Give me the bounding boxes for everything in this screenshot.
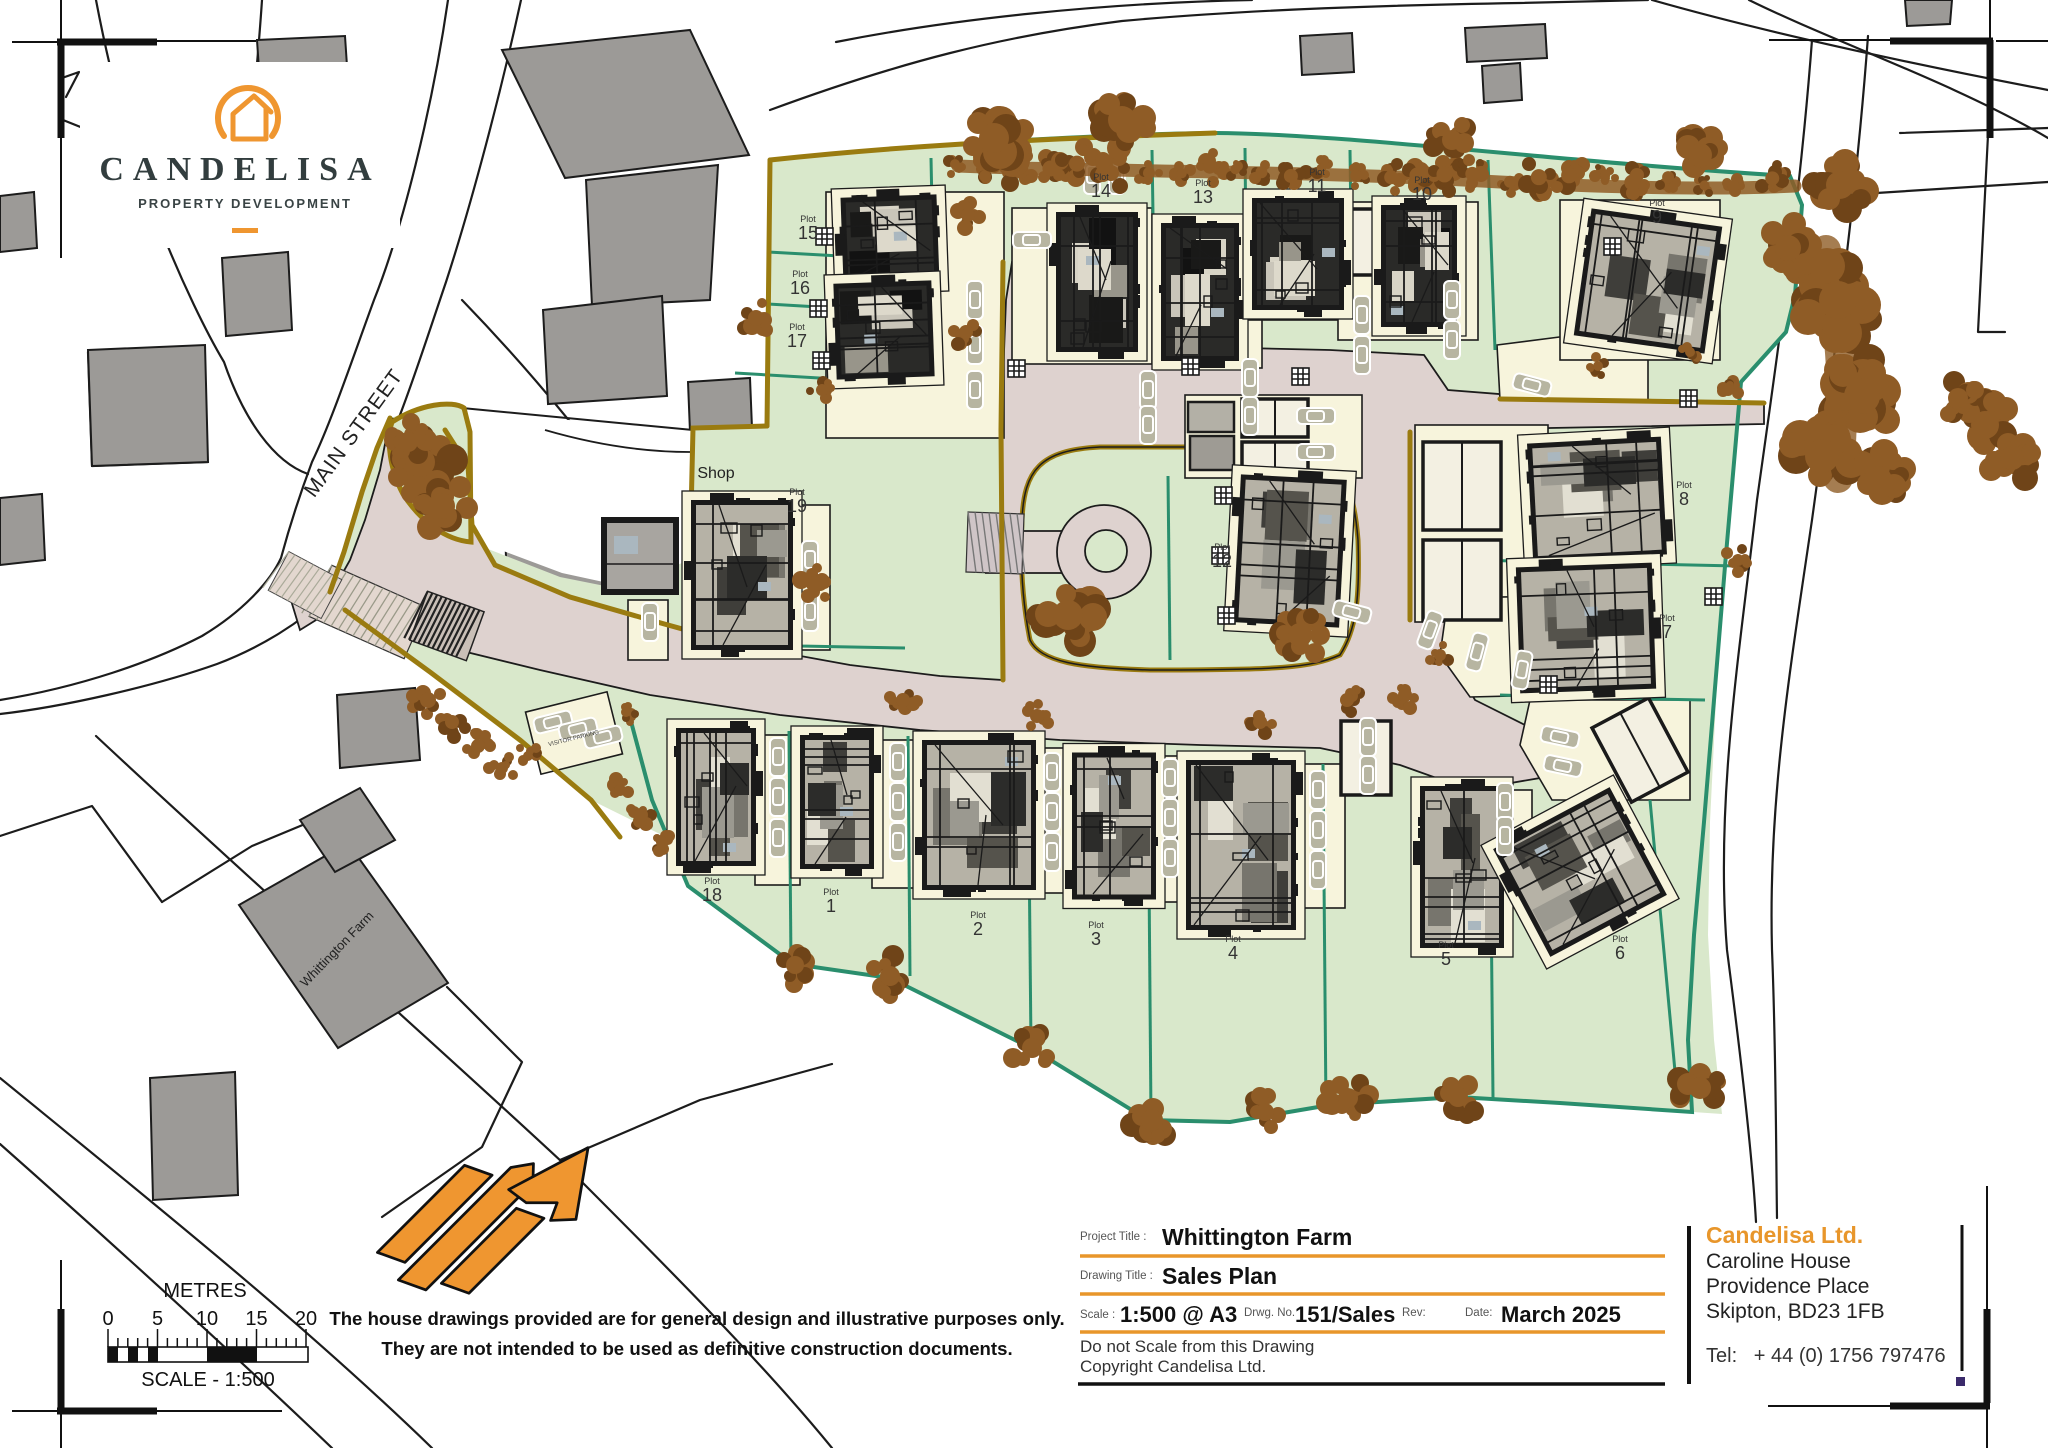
svg-text:PROPERTY DEVELOPMENT: PROPERTY DEVELOPMENT bbox=[138, 196, 352, 211]
svg-text:18: 18 bbox=[702, 885, 722, 905]
svg-text:20: 20 bbox=[295, 1308, 317, 1330]
svg-text:8: 8 bbox=[1679, 489, 1689, 509]
svg-text:12: 12 bbox=[1212, 551, 1232, 571]
svg-text:Rev:: Rev: bbox=[1402, 1307, 1426, 1319]
svg-text:Skipton, BD23 1FB: Skipton, BD23 1FB bbox=[1706, 1300, 1885, 1323]
svg-text:2: 2 bbox=[973, 919, 983, 939]
svg-text:Tel: + 44 (0) 1756 797476: Tel: + 44 (0) 1756 797476 bbox=[1706, 1345, 1946, 1367]
svg-text:15: 15 bbox=[245, 1308, 267, 1330]
svg-text:9: 9 bbox=[1652, 207, 1662, 227]
svg-text:Drawing Title :: Drawing Title : bbox=[1080, 1270, 1153, 1282]
svg-text:Shop: Shop bbox=[697, 465, 734, 482]
svg-text:METRES: METRES bbox=[163, 1280, 246, 1302]
svg-text:CANDELISA: CANDELISA bbox=[99, 151, 380, 188]
svg-text:Caroline House: Caroline House bbox=[1706, 1250, 1851, 1273]
svg-text:1:500 @ A3: 1:500 @ A3 bbox=[1120, 1302, 1237, 1327]
svg-text:SCALE - 1:500: SCALE - 1:500 bbox=[141, 1369, 274, 1391]
svg-text:1: 1 bbox=[826, 896, 836, 916]
svg-text:6: 6 bbox=[1615, 943, 1625, 963]
svg-text:151/Sales: 151/Sales bbox=[1295, 1302, 1395, 1327]
svg-text:Candelisa Ltd.: Candelisa Ltd. bbox=[1706, 1222, 1863, 1248]
svg-text:Project Title :: Project Title : bbox=[1080, 1231, 1146, 1243]
svg-text:15: 15 bbox=[798, 223, 818, 243]
svg-text:16: 16 bbox=[790, 278, 810, 298]
svg-text:They are not intended to be us: They are not intended to be used as defi… bbox=[381, 1338, 1012, 1359]
svg-text:Scale :: Scale : bbox=[1080, 1309, 1115, 1321]
svg-text:Copyright Candelisa Ltd.: Copyright Candelisa Ltd. bbox=[1080, 1357, 1266, 1376]
svg-text:19: 19 bbox=[787, 496, 807, 516]
svg-text:0: 0 bbox=[102, 1308, 113, 1330]
svg-text:11: 11 bbox=[1308, 176, 1327, 196]
svg-text:4: 4 bbox=[1228, 943, 1238, 963]
svg-text:Whittington Farm: Whittington Farm bbox=[1162, 1224, 1352, 1250]
svg-text:Do not Scale from this Drawing: Do not Scale from this Drawing bbox=[1080, 1337, 1314, 1356]
svg-text:10: 10 bbox=[196, 1308, 218, 1330]
svg-text:March 2025: March 2025 bbox=[1501, 1302, 1621, 1327]
svg-text:7: 7 bbox=[1662, 622, 1672, 642]
svg-text:17: 17 bbox=[787, 331, 807, 351]
svg-text:Drwg. No.: Drwg. No. bbox=[1244, 1307, 1295, 1319]
svg-text:10: 10 bbox=[1412, 184, 1432, 204]
svg-text:5: 5 bbox=[152, 1308, 163, 1330]
svg-text:The house drawings provided ar: The house drawings provided are for gene… bbox=[329, 1308, 1064, 1329]
svg-text:3: 3 bbox=[1091, 929, 1101, 949]
svg-text:Sales Plan: Sales Plan bbox=[1162, 1263, 1277, 1289]
svg-text:Providence Place: Providence Place bbox=[1706, 1275, 1869, 1298]
svg-text:14: 14 bbox=[1091, 181, 1111, 201]
svg-text:13: 13 bbox=[1193, 187, 1213, 207]
svg-text:5: 5 bbox=[1441, 949, 1451, 969]
svg-text:Date:: Date: bbox=[1465, 1307, 1493, 1319]
